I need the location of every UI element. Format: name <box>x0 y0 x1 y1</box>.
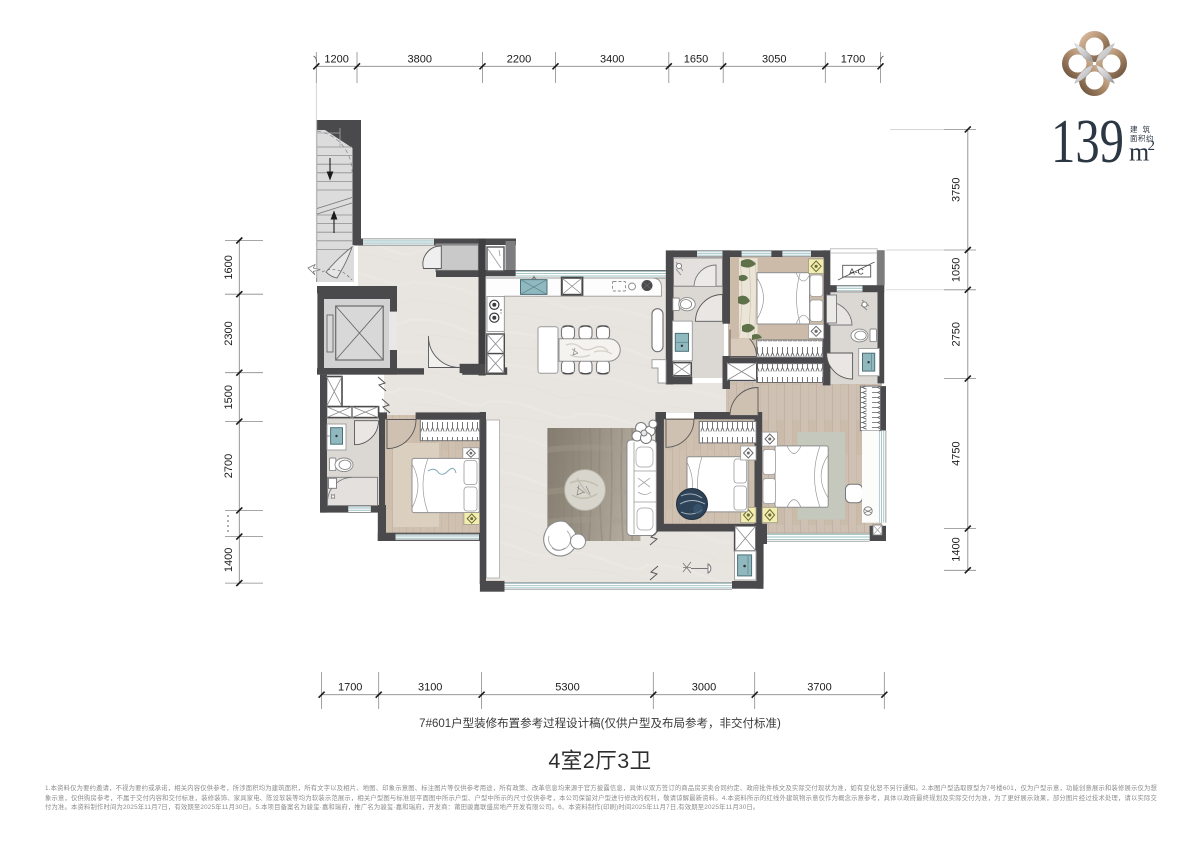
svg-text:3750: 3750 <box>951 177 963 201</box>
svg-text:3050: 3050 <box>762 54 786 66</box>
svg-text:5300: 5300 <box>555 682 579 694</box>
svg-text:面积约: 面积约 <box>1130 133 1154 143</box>
svg-text:建筑: 建筑 <box>1130 124 1155 134</box>
svg-text:1400: 1400 <box>223 548 235 572</box>
svg-text:2200: 2200 <box>507 54 531 66</box>
svg-text:1050: 1050 <box>951 258 963 282</box>
svg-text:139: 139 <box>1051 108 1124 176</box>
svg-text:1600: 1600 <box>223 255 235 279</box>
svg-text:2750: 2750 <box>951 322 963 346</box>
svg-text:4750: 4750 <box>951 441 963 465</box>
svg-text:3100: 3100 <box>418 682 442 694</box>
svg-text:3800: 3800 <box>408 54 432 66</box>
svg-text:1700: 1700 <box>841 54 865 66</box>
svg-text:2700: 2700 <box>223 454 235 478</box>
svg-text:3400: 3400 <box>600 54 624 66</box>
svg-text:1400: 1400 <box>951 537 963 561</box>
svg-text:1700: 1700 <box>338 682 362 694</box>
svg-text:1500: 1500 <box>223 385 235 409</box>
svg-text:3000: 3000 <box>692 682 716 694</box>
svg-text:1650: 1650 <box>684 54 708 66</box>
svg-text:3700: 3700 <box>807 682 831 694</box>
svg-text:A-C: A-C <box>849 267 864 277</box>
svg-text:2300: 2300 <box>223 321 235 345</box>
svg-text:1200: 1200 <box>324 54 348 66</box>
